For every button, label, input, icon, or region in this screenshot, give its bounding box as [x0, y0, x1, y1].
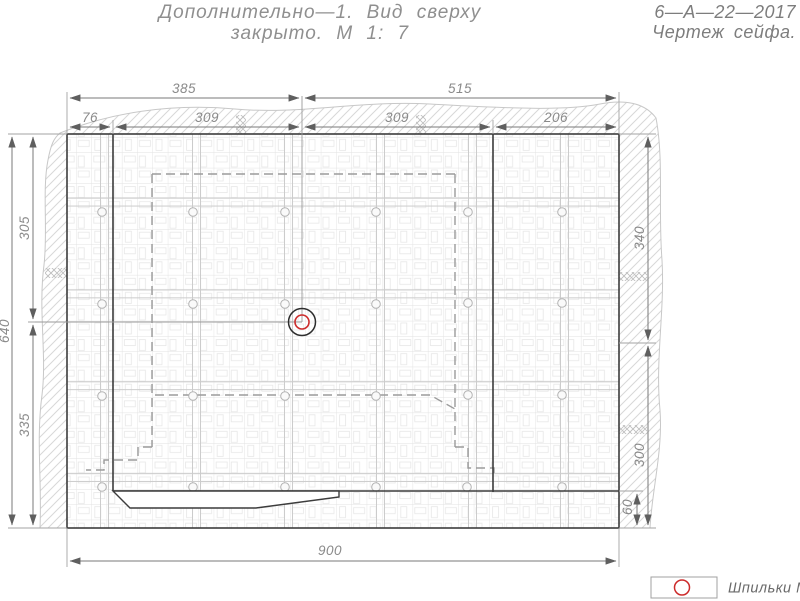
drawing-svg: 385 515 76 309 309 206 640 305 335 340 3…: [0, 0, 800, 601]
dim-label-309a: 309: [195, 110, 219, 125]
stud-circle: [558, 391, 567, 400]
stud-circle: [464, 391, 473, 400]
stud-circle: [98, 208, 107, 217]
dim-label-206: 206: [543, 110, 568, 125]
stud-circle: [558, 299, 567, 308]
stud-circle: [281, 300, 290, 309]
stud-circle: [189, 483, 198, 492]
stud-circle: [281, 483, 290, 492]
legend-label: Шпильки М16: [728, 581, 800, 597]
dim-label-900: 900: [318, 543, 342, 558]
dim-label-515: 515: [448, 81, 472, 96]
stud-circle: [372, 208, 381, 217]
stud-circle: [464, 208, 473, 217]
stud-circle: [98, 392, 107, 401]
dim-label-385: 385: [172, 81, 196, 96]
stud-circle: [463, 483, 472, 492]
stud-circle: [98, 300, 107, 309]
stud-circle: [464, 299, 473, 308]
dim-label-340: 340: [632, 226, 647, 250]
dim-label-300: 300: [632, 443, 647, 467]
dim-label-76: 76: [82, 110, 98, 125]
safe-panel-surface: [67, 134, 619, 528]
stud-circle: [189, 208, 198, 217]
stud-circle: [189, 392, 198, 401]
stud-circle: [558, 208, 567, 217]
stud-circle: [98, 483, 107, 492]
stud-circle: [189, 300, 198, 309]
stud-circle: [281, 208, 290, 217]
stud-circle: [372, 300, 381, 309]
stud-circle: [558, 483, 567, 492]
cad-drawing-sheet: Дополнительно—1. Вид сверху закрыто. М 1…: [0, 0, 800, 601]
stud-circle: [281, 392, 290, 401]
dim-label-335: 335: [17, 413, 32, 437]
dim-label-305: 305: [17, 216, 32, 240]
stud-circle: [372, 483, 381, 492]
legend: Шпильки М16: [651, 577, 800, 598]
dim-label-60: 60: [620, 499, 635, 515]
dim-label-640: 640: [0, 319, 12, 343]
dim-label-309b: 309: [385, 110, 409, 125]
stud-circle: [372, 392, 381, 401]
